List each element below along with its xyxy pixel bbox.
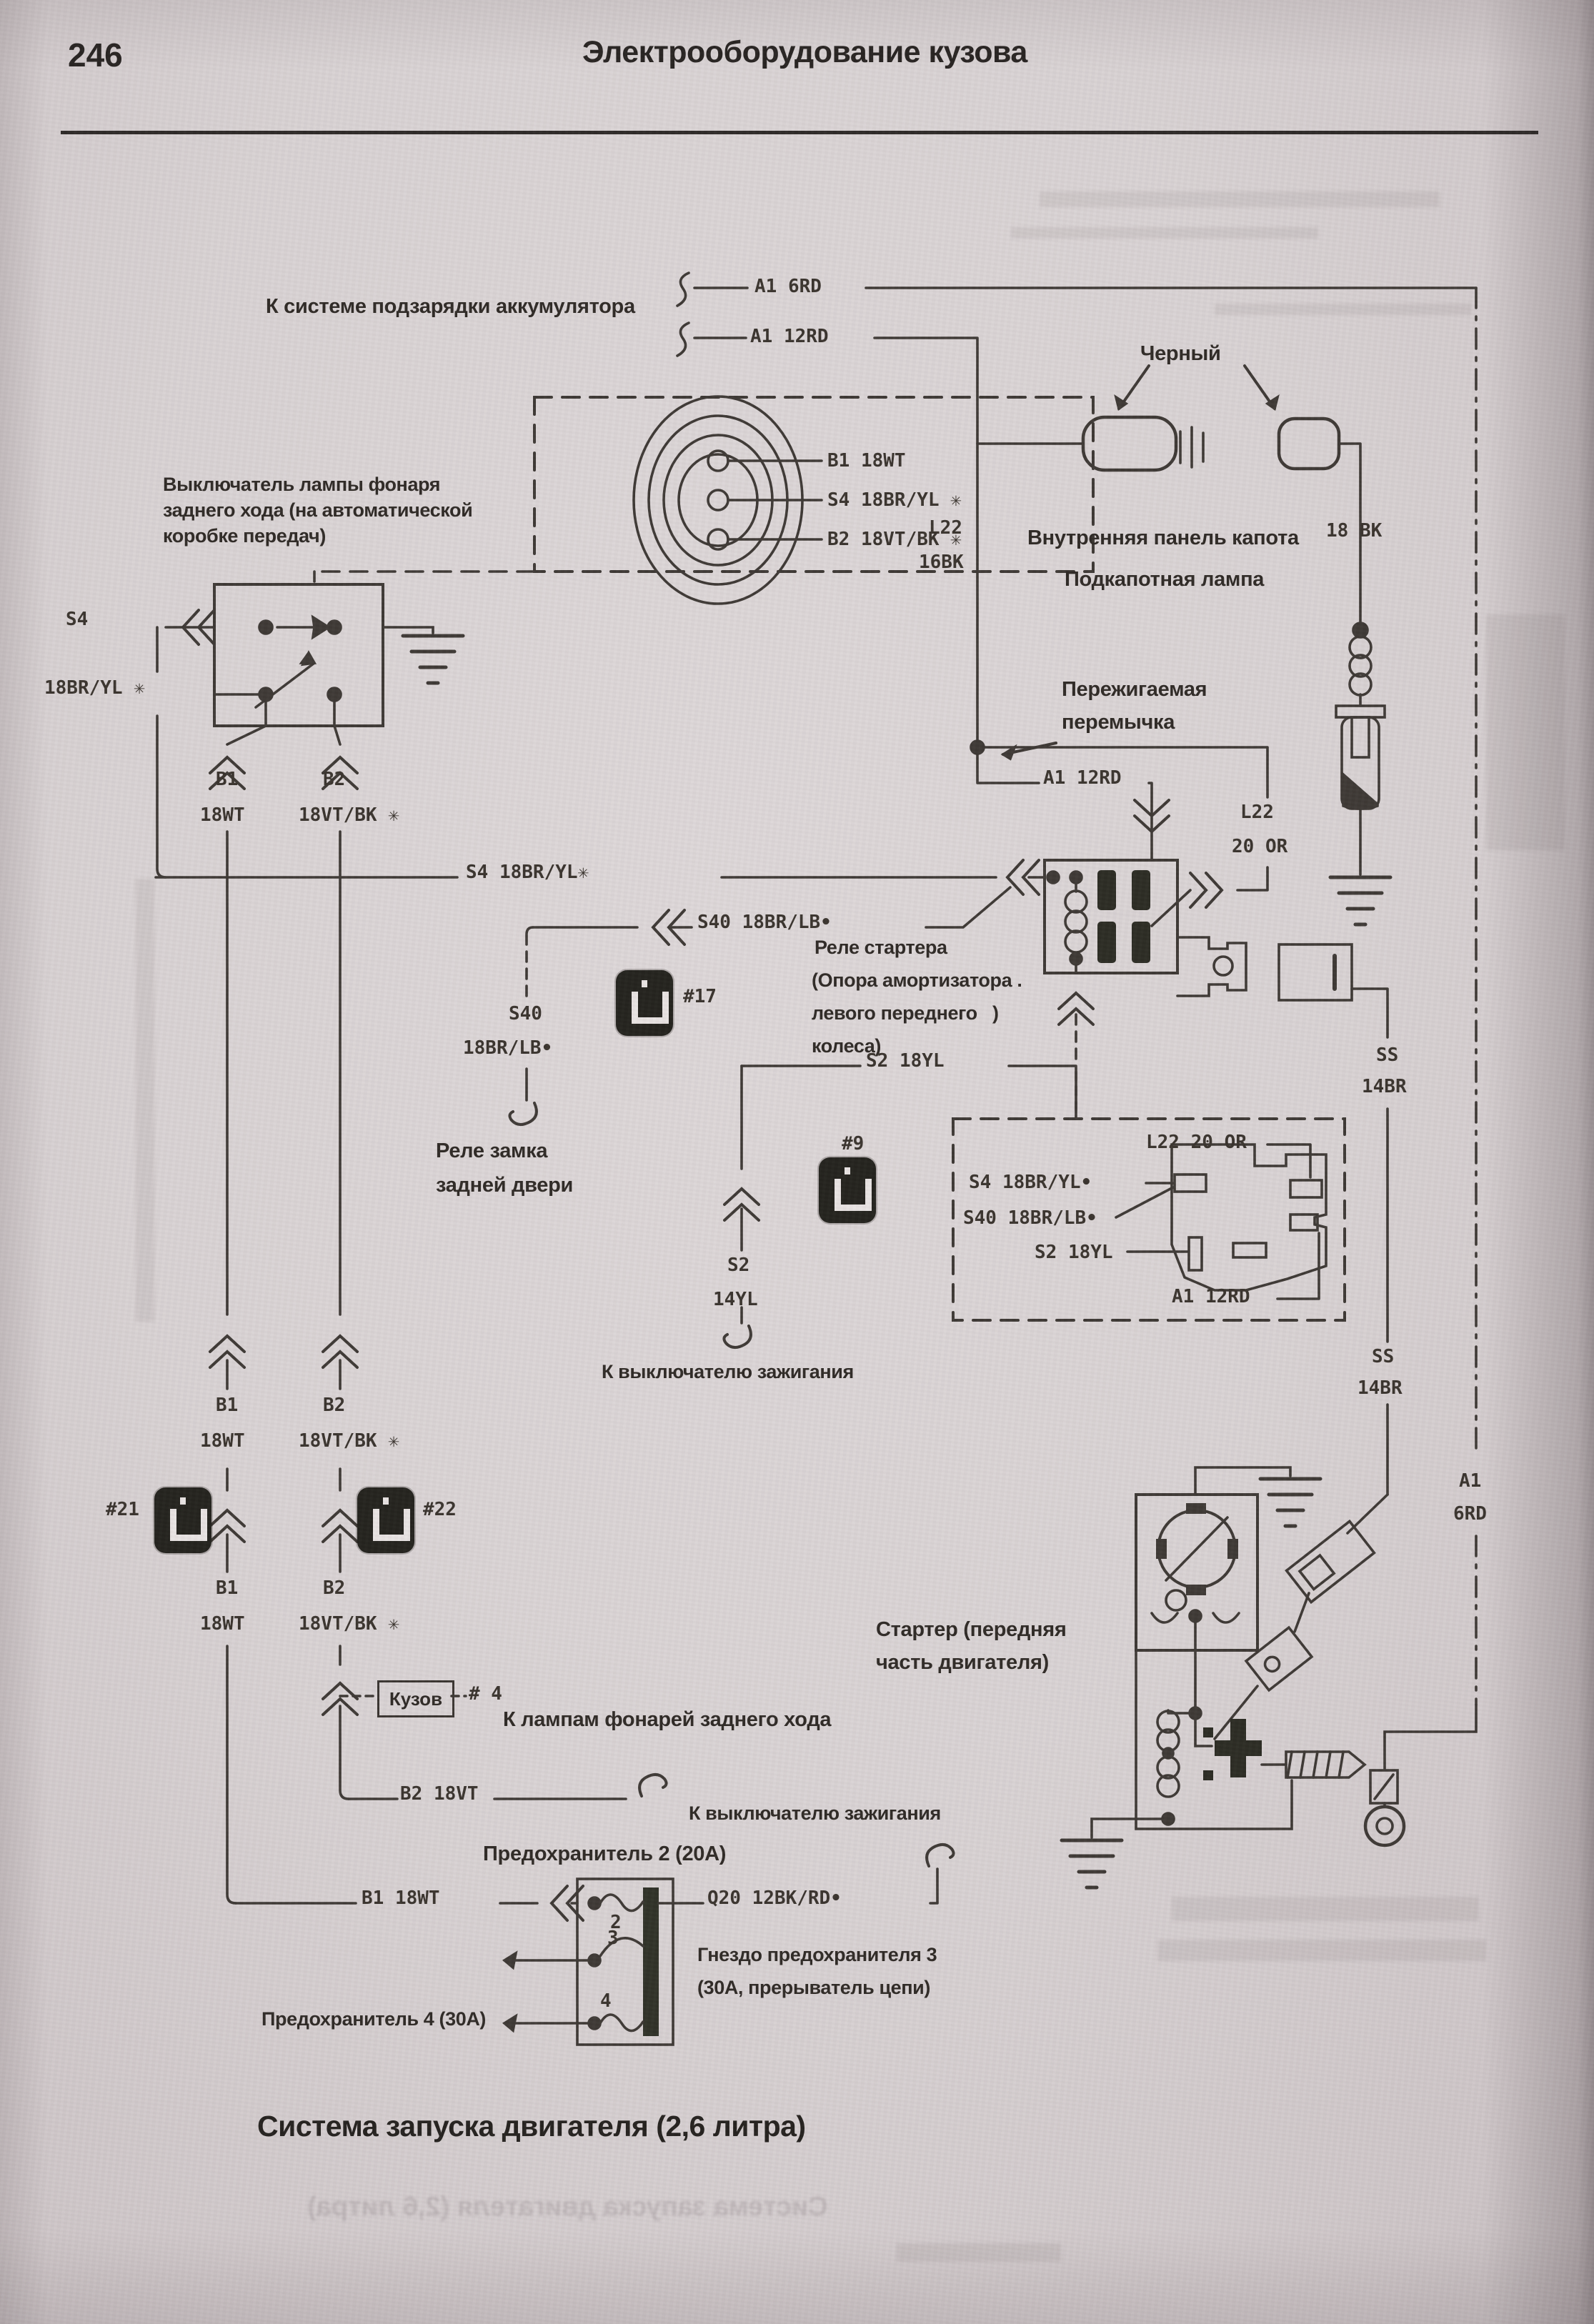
- label-to-ignition-2: К выключателю зажигания: [689, 1800, 941, 1826]
- body-ground-box: Кузов: [377, 1680, 454, 1717]
- wire-b1-inline: B1 18WT: [362, 1887, 440, 1910]
- box-wire-s40: S40 18BR/LB•: [963, 1207, 1097, 1230]
- label-fuse3-socket-2: (30А, прерыватель цепи): [697, 1975, 930, 2000]
- conn-pin-b1: B1 18WT: [827, 450, 906, 472]
- wire-a1-6rd: A1 6RD: [754, 276, 822, 298]
- wire-s4-inline: S4 18BR/YL✳: [466, 862, 589, 884]
- label-starter-relay-2: (Опора амортизатора .: [812, 967, 1022, 993]
- label-reverse-switch-3: коробке передач): [163, 523, 326, 549]
- label-num4: # 4: [469, 1683, 502, 1705]
- label-fuse2: Предохранитель 2 (20А): [483, 1842, 726, 1867]
- wire-l22-20or-2: 20 OR: [1232, 836, 1287, 858]
- splice-icon-9: [819, 1157, 876, 1223]
- wire-b1-3: B1: [216, 1577, 238, 1600]
- wire-b2-gauge-3: 18VT/BK ✳: [299, 1613, 399, 1635]
- label-starter-2: часть двигателя): [876, 1650, 1049, 1675]
- wire-b2-2: B2: [323, 1395, 345, 1417]
- wire-s40-gauge: 18BR/LB•: [463, 1037, 552, 1059]
- wire-ss-gauge-1: 14BR: [1362, 1076, 1407, 1098]
- wire-b2-18vt-inline: B2 18VT: [400, 1783, 479, 1805]
- label-fuse3-socket-1: Гнездо предохранителя 3: [697, 1942, 937, 1968]
- wire-q20-inline: Q20 12BK/RD•: [707, 1887, 842, 1910]
- label-rear-lock-relay-2: задней двери: [436, 1173, 573, 1198]
- label-fusible-link-1: Пережигаемая: [1062, 677, 1207, 702]
- label-num17: #17: [683, 986, 717, 1008]
- label-charge-system: К системе подзарядки аккумулятора: [266, 294, 635, 319]
- scanned-manual-page: 246 Электрооборудование кузова Система з…: [0, 0, 1594, 2324]
- wire-s2-inline: S2 18YL: [866, 1050, 945, 1072]
- label-inner-hood-panel: Внутренняя панель капота: [1027, 526, 1299, 551]
- fuse-num4: 4: [600, 1990, 612, 2013]
- wire-s2: S2: [727, 1255, 749, 1277]
- label-to-ignition-1: К выключателю зажигания: [602, 1359, 854, 1385]
- box-wire-s2: S2 18YL: [1035, 1242, 1113, 1264]
- wire-b2-gauge: 18VT/BK ✳: [299, 804, 399, 827]
- label-fuse4: Предохранитель 4 (30А): [261, 2006, 486, 2032]
- wire-l22-gauge: 16BK: [919, 552, 964, 574]
- wire-s4-gauge: 18BR/YL ✳: [44, 677, 145, 699]
- label-num21: #21: [106, 1499, 139, 1521]
- wire-b1-2: B1: [216, 1395, 238, 1417]
- fuse-num3: 3: [607, 1927, 619, 1950]
- wire-b1-gauge-3: 18WT: [200, 1613, 245, 1635]
- wire-b1: B1: [216, 769, 238, 791]
- wire-b1-gauge-2: 18WT: [200, 1430, 245, 1452]
- splice-icon-22: [357, 1487, 414, 1553]
- label-num22: #22: [423, 1499, 457, 1521]
- wire-b2: B2: [323, 769, 345, 791]
- wire-a1-12rd: A1 12RD: [750, 326, 829, 348]
- wire-a1-12rd-inline: A1 12RD: [1043, 767, 1122, 789]
- wire-s4: S4: [66, 609, 88, 631]
- box-wire-l22: L22 20 OR: [1146, 1132, 1247, 1154]
- label-to-reverse-lamps: К лампам фонарей заднего хода: [503, 1707, 831, 1732]
- label-starter-relay-1: Реле стартера: [815, 934, 947, 960]
- diagram-caption: Система запуска двигателя (2,6 литра): [257, 2109, 806, 2144]
- wire-a1-gauge: 6RD: [1453, 1503, 1487, 1525]
- wire-a1: A1: [1459, 1470, 1481, 1492]
- label-rear-lock-relay-1: Реле замка: [436, 1139, 547, 1164]
- wire-l22-20or-1: L22: [1240, 802, 1274, 824]
- wire-b2-3: B2: [323, 1577, 345, 1600]
- wire-b2-gauge-2: 18VT/BK ✳: [299, 1430, 399, 1452]
- conn-pin-s4: S4 18BR/YL ✳: [827, 489, 962, 512]
- box-wire-a1: A1 12RD: [1172, 1286, 1250, 1308]
- label-reverse-switch-2: заднего хода (на автоматической: [163, 497, 472, 523]
- splice-icon-21: [154, 1487, 211, 1553]
- conn-pin-b2: B2 18VT/BK ✳: [827, 529, 962, 551]
- wire-s40: S40: [509, 1003, 542, 1025]
- wire-ss-gauge-2: 14BR: [1358, 1377, 1403, 1400]
- splice-icon-17: [616, 970, 673, 1036]
- label-reverse-switch-1: Выключатель лампы фонаря: [163, 472, 440, 497]
- wire-ss-2: SS: [1372, 1346, 1394, 1368]
- label-hood-lamp: Подкапотная лампа: [1065, 567, 1264, 592]
- wire-b1-gauge: 18WT: [200, 804, 245, 827]
- wire-18bk: 18 BK: [1326, 520, 1382, 542]
- label-starter-1: Стартер (передняя: [876, 1617, 1067, 1642]
- label-num9: #9: [842, 1133, 864, 1155]
- label-starter-relay-3: левого переднего ): [812, 1000, 999, 1026]
- wire-ss-1: SS: [1376, 1044, 1398, 1067]
- label-black: Черный: [1140, 341, 1221, 366]
- wire-s2-gauge: 14YL: [713, 1289, 758, 1311]
- wire-s40-inline: S40 18BR/LB•: [697, 912, 832, 934]
- label-fusible-link-2: перемычка: [1062, 710, 1175, 735]
- box-wire-s4: S4 18BR/YL•: [969, 1172, 1092, 1194]
